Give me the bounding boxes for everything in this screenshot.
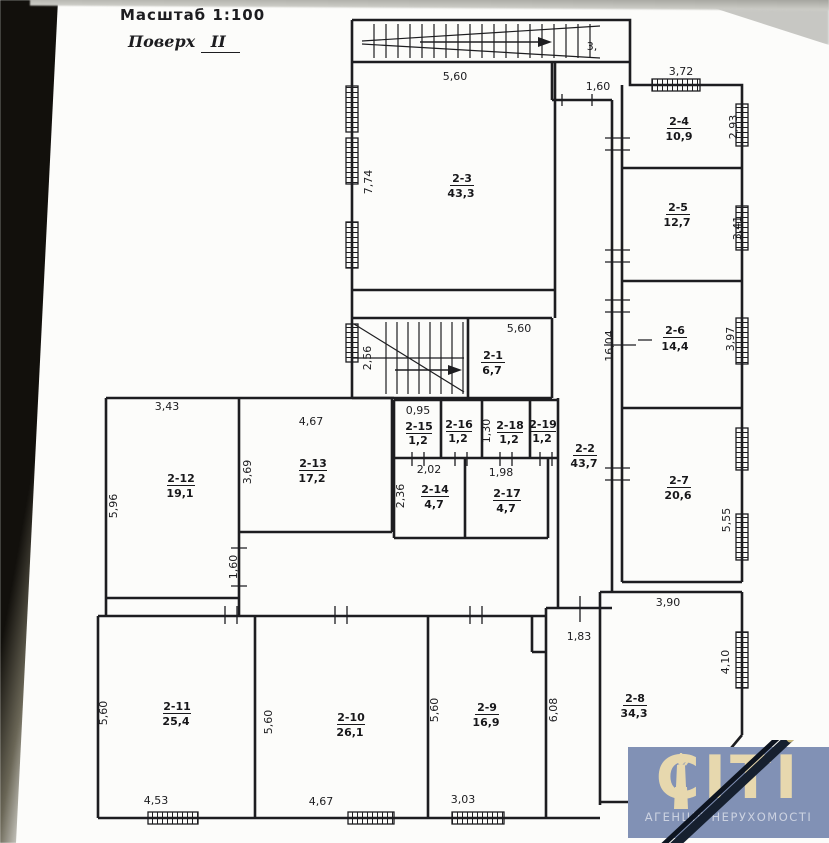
dimension-label: 5,60 [262,710,275,735]
room-id-label: 2-12 [167,472,195,485]
room-label: 2-144,7 [421,483,449,511]
dimension-label: 2,56 [361,346,374,371]
room-label: 2-181,2 [496,419,524,446]
walls [98,20,742,818]
room-label: 2-151,2 [405,420,433,447]
floor-prefix: Поверх [128,32,195,51]
room-area-label: 16,9 [472,716,499,729]
dimension-label: 3, [587,40,598,53]
room-area-label: 26,1 [336,726,363,739]
room-area-label: 6,7 [482,364,502,377]
room-id-label: 2-16 [445,418,473,431]
room-id-label: 2-5 [668,201,688,214]
room-area-label: 14,4 [661,340,688,353]
dimension-label: 1,60 [586,80,611,93]
room-label: 2-16,7 [481,349,505,377]
dimension-label: 1,30 [480,419,493,444]
agency-tagline: АГЕНЦІЯ НЕРУХОМОСТІ [645,810,812,824]
dimension-label: 5,60 [507,322,532,335]
room-id-label: 2-1 [483,349,503,362]
room-label: 2-191,2 [529,418,557,445]
door-ticks [225,94,652,624]
dimension-label: 3,03 [451,793,476,806]
room-id-label: 2-19 [529,418,557,431]
room-label: 2-1219,1 [166,472,195,500]
room-area-label: 25,4 [162,715,189,728]
statue-icon [670,753,692,811]
dimension-label: 2,02 [417,463,442,476]
dimension-label: 4,67 [309,795,334,808]
room-label: 2-343,3 [447,172,474,200]
room-area-label: 1,2 [408,434,428,447]
room-label: 2-1125,4 [162,700,191,728]
dimension-label: 1,60 [227,555,240,580]
stairs-top [362,24,600,58]
room-id-label: 2-7 [669,474,689,487]
floor-plan-drawing: 2-16,7 2-243,7 2-343,3 2-410,9 2-512,7 2… [0,0,829,843]
room-label: 2-243,7 [570,442,597,470]
dimension-label: 5,60 [97,701,110,726]
plan-header: Масштаб 1:100 Поверх II [120,6,265,51]
dimension-label: 1,83 [567,630,592,643]
room-label: 2-1317,2 [298,457,327,485]
room-id-label: 2-8 [625,692,645,705]
dimension-label: 3,43 [155,400,180,413]
room-area-label: 1,2 [499,433,519,446]
dimension-label: 4,67 [299,415,324,428]
scale-label: Масштаб 1:100 [120,6,265,24]
room-label: 2-174,7 [493,487,521,515]
room-id-label: 2-9 [477,701,497,714]
room-label: 2-512,7 [663,201,690,229]
room-label: 2-916,9 [472,701,499,729]
dimension-label: 3,72 [669,65,694,78]
room-area-label: 4,7 [496,502,516,515]
floor-label: Поверх II [128,32,265,51]
room-label: 2-614,4 [661,324,688,353]
dimension-label: 2,36 [394,484,407,509]
floor-number: II [201,32,240,53]
dimension-label: 5,96 [107,494,120,519]
dimension-label: 3,41 [731,216,744,241]
room-area-label: 19,1 [166,487,193,500]
room-area-label: 20,6 [664,489,691,502]
room-id-label: 2-14 [421,483,449,496]
room-area-label: 1,2 [532,432,552,445]
room-id-label: 2-2 [575,442,595,455]
room-label: 2-410,9 [665,115,692,143]
dimension-label: 5,55 [720,508,733,533]
dimension-label: 4,10 [719,650,732,675]
room-id-label: 2-3 [452,172,472,185]
room-id-label: 2-15 [405,420,433,433]
dimension-label: 16,04 [603,330,616,362]
dimension-label: 1,98 [489,466,514,479]
dimension-label: 3,90 [656,596,681,609]
dimension-label: 3,69 [241,460,254,485]
room-id-label: 2-11 [163,700,191,713]
room-id-label: 2-10 [337,711,365,724]
room-area-label: 1,2 [448,432,468,445]
dimension-label: 7,74 [362,170,375,195]
room-area-label: 43,3 [447,187,474,200]
room-area-label: 34,3 [620,707,647,720]
room-area-label: 12,7 [663,216,690,229]
room-area-label: 17,2 [298,472,325,485]
room-area-label: 4,7 [424,498,444,511]
room-label: 2-720,6 [664,474,691,502]
room-id-label: 2-13 [299,457,327,470]
room-area-label: 10,9 [665,130,692,143]
room-id-label: 2-17 [493,487,521,500]
dimension-label: 6,08 [547,698,560,723]
room-area-label: 43,7 [570,457,597,470]
dimension-label: 0,95 [406,404,431,417]
room-id-label: 2-18 [496,419,524,432]
dimension-label: 4,53 [144,794,169,807]
dimension-label: 2,93 [727,115,740,140]
dimension-label: 5,60 [428,698,441,723]
dimension-label: 5,60 [443,70,468,83]
room-id-label: 2-4 [669,115,689,128]
room-label: 2-161,2 [445,418,473,445]
agency-watermark: СІТІ АГЕНЦІЯ НЕРУХОМОСТІ [628,747,829,838]
dimension-label: 3,97 [724,327,737,352]
room-id-label: 2-6 [665,324,685,337]
room-label: 2-1026,1 [336,711,365,739]
room-label: 2-834,3 [620,692,647,720]
